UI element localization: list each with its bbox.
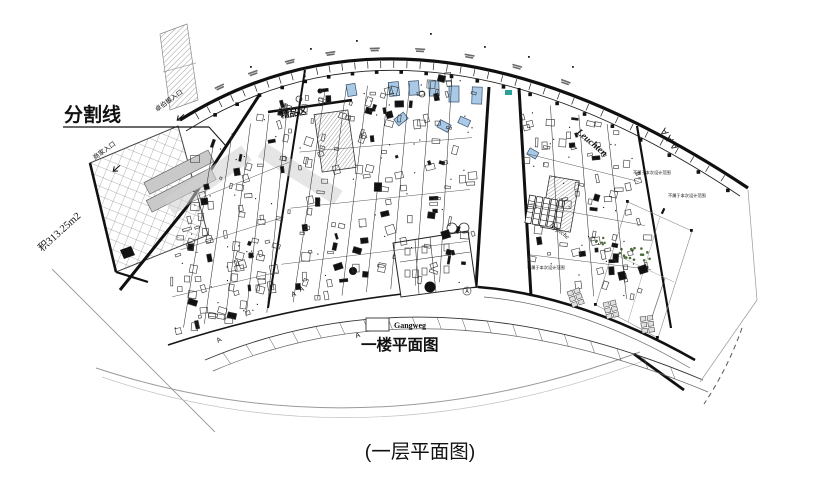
display-window [472,87,483,104]
furniture [200,284,206,292]
site-dot [310,48,312,50]
furniture [365,164,374,172]
shelving-racks [525,195,565,229]
furniture [433,209,438,213]
furniture [400,185,406,191]
furniture [327,279,333,287]
column-dot [425,282,436,293]
furniture [446,249,452,255]
furniture [625,183,632,191]
furniture [352,247,362,255]
column [303,80,307,84]
furniture [592,231,596,237]
road-arc-outer [96,352,640,408]
furniture [432,139,440,144]
legend-label: Gangweg [394,321,426,330]
furniture [586,121,595,128]
micro-label [464,54,475,59]
road-dashed-arc [704,328,742,404]
furniture [194,320,199,329]
furniture [320,88,328,92]
furniture [413,119,421,129]
furniture [236,184,244,191]
column [424,72,428,76]
furniture [223,231,227,239]
column [375,70,379,74]
furniture [248,285,251,291]
column [611,124,615,128]
furniture [623,160,630,168]
furniture [338,223,345,229]
micro-label [370,47,380,51]
furniture [302,272,306,281]
furniture [625,209,631,215]
teal-fixture [505,90,512,95]
floor-plan-page: Gangweg 分割线 积313.25m2 卓伯根入口 商家入口 精品区 Leu… [0,0,827,501]
floor-title: 一楼平面图 [361,335,439,354]
furniture [445,91,449,97]
divider-label: 分割线 [64,103,121,126]
column [399,70,403,74]
micro-label [512,64,523,70]
furniture [217,314,225,320]
furniture [535,138,538,147]
column [258,93,262,97]
furniture [324,291,329,300]
furniture [609,260,615,263]
furniture [300,232,305,235]
column [213,113,217,117]
furniture [466,182,474,186]
scope-note: 不属于本次设计范围 [633,169,671,176]
column [555,102,559,106]
site-dot [528,56,530,58]
furniture [177,287,182,292]
furniture [425,163,435,171]
furniture [451,145,458,154]
furniture [208,201,214,209]
furniture [235,251,244,260]
furniture [257,272,266,280]
furniture [360,238,368,244]
seating-cluster [640,315,655,333]
furniture [370,92,375,95]
furniture [567,132,571,139]
micro-label [214,83,225,91]
terrace-seating [567,288,655,334]
display-item [527,148,539,159]
furniture [201,198,209,205]
furniture [590,207,598,211]
furniture [245,310,250,315]
furniture [592,156,600,161]
furniture [238,205,243,211]
furniture [333,262,343,270]
road-arc-inner [102,360,646,418]
furniture [409,101,413,108]
furniture [302,279,308,287]
furniture [256,254,265,261]
furniture [335,233,339,239]
furniture [385,224,396,235]
furniture [315,295,320,300]
furniture [359,219,366,227]
furniture [210,139,215,148]
furniture [311,119,313,124]
furniture [247,241,251,246]
legend: Gangweg [366,318,426,331]
furniture [378,263,387,273]
furniture [256,286,265,295]
furniture [605,248,611,252]
furniture [256,114,263,121]
column [450,75,454,79]
furniture [615,188,623,192]
area-label: 积313.25m2 [36,210,83,254]
furniture [395,155,398,158]
furniture [437,75,446,83]
furniture [203,184,209,190]
furniture [277,120,283,129]
site-dot [572,66,574,68]
furniture [613,131,619,135]
furniture [304,137,314,147]
aaa-label: AAA [658,124,682,152]
legend-swatch [366,318,389,331]
furniture [265,240,270,244]
furniture [227,312,237,320]
column [280,86,284,90]
furniture [385,199,391,205]
site-dot [250,66,252,68]
radial-wall-4 [637,126,671,328]
furniture [385,120,394,128]
furniture [245,163,252,171]
facade-top-dots [250,33,574,68]
scope-note: 不属于本次设计范围 [527,264,565,271]
road-wall-segment [634,354,684,390]
furniture [187,298,197,306]
furniture [198,315,201,318]
furniture [288,210,290,214]
site-dot [356,40,358,42]
column [668,153,672,157]
site-dot [430,33,432,35]
column [327,75,331,79]
furniture [244,193,252,198]
furniture [175,253,181,257]
furniture [217,307,227,315]
furniture [184,276,189,282]
furniture [459,175,465,183]
furniture [382,150,387,154]
furniture [307,208,312,215]
furniture [252,238,259,243]
furniture [546,119,555,126]
furniture [385,111,393,119]
display-window [409,81,420,96]
micro-label [325,51,335,56]
furniture [628,251,634,256]
furniture [327,251,333,254]
grid-letter: A [290,291,297,299]
furniture [171,277,173,286]
furniture [258,164,264,167]
furniture [643,235,651,240]
furniture [395,171,404,179]
furniture [548,252,551,255]
furniture [258,250,263,256]
furniture [355,165,363,174]
column [476,79,480,83]
scope-note: 不属于本次设计范围 [668,192,706,199]
furniture [468,172,477,180]
furniture [471,231,475,236]
furniture [559,139,566,147]
stairs-escalators [139,110,580,232]
micro-label [560,79,571,86]
micro-label [415,48,425,52]
furniture [383,108,387,114]
terrace-rail-arc [484,297,690,368]
grid-letter: A [298,286,305,294]
column [528,93,532,97]
furniture [587,153,592,157]
furniture [231,274,237,282]
furniture [332,243,337,251]
furniture [408,215,413,222]
furniture [571,117,578,120]
furniture [195,276,201,281]
site-boundary-line [52,269,215,432]
furniture [233,168,240,176]
furniture [305,95,308,100]
furniture [339,279,348,283]
leuchten-label: Leuchten [573,127,609,159]
furniture [560,243,568,247]
furniture [207,254,213,262]
furniture [240,301,247,309]
furniture [268,139,276,143]
radial-wall-2 [476,87,489,287]
furniture [289,129,292,133]
furniture [430,202,438,206]
furniture [239,212,245,218]
furniture [280,166,284,173]
radial-wall-1 [268,70,305,308]
furniture [380,93,386,98]
display-window [346,83,357,96]
furniture [624,265,628,270]
furniture [386,178,393,182]
furniture [588,199,592,205]
furniture [630,294,634,300]
column [235,102,239,106]
furniture [349,101,353,105]
furniture [363,174,370,178]
page-caption: (一层平面图) [365,441,476,463]
furniture [423,114,429,123]
furniture [380,210,389,217]
furniture [395,101,404,108]
furniture [175,328,182,335]
furniture [370,136,374,142]
furniture [609,267,615,275]
furniture [579,183,584,187]
micro-label [248,70,259,77]
furniture [208,313,217,317]
site-dot [484,46,486,48]
furniture [618,271,627,280]
micro-label [285,59,296,65]
walkway-ticks [223,317,675,379]
furniture [595,248,598,252]
display-item [458,116,471,127]
furniture [526,120,533,127]
furniture [332,222,336,226]
furniture [306,196,314,205]
furniture [326,96,331,103]
furniture [597,267,604,274]
furniture [238,260,246,269]
furniture [543,146,550,150]
furniture [362,271,368,277]
furniture [536,237,542,245]
furniture [315,198,320,207]
furniture [369,108,375,111]
furniture [612,243,618,248]
furniture [593,194,600,202]
column [726,189,730,193]
furniture [543,162,548,167]
furniture [579,251,586,257]
furniture [595,174,599,183]
column [502,85,506,89]
fixtures [296,81,651,293]
column [697,170,701,174]
floor-plan-drawing: Gangweg 分割线 积313.25m2 卓伯根入口 商家入口 精品区 Leu… [0,0,827,501]
column [583,112,587,116]
column [351,72,355,76]
furniture [234,290,240,295]
furniture [461,262,465,265]
furniture [614,165,619,168]
grid-letter: A [216,336,224,345]
furniture [637,288,642,293]
furniture [305,159,312,168]
column [639,138,643,142]
